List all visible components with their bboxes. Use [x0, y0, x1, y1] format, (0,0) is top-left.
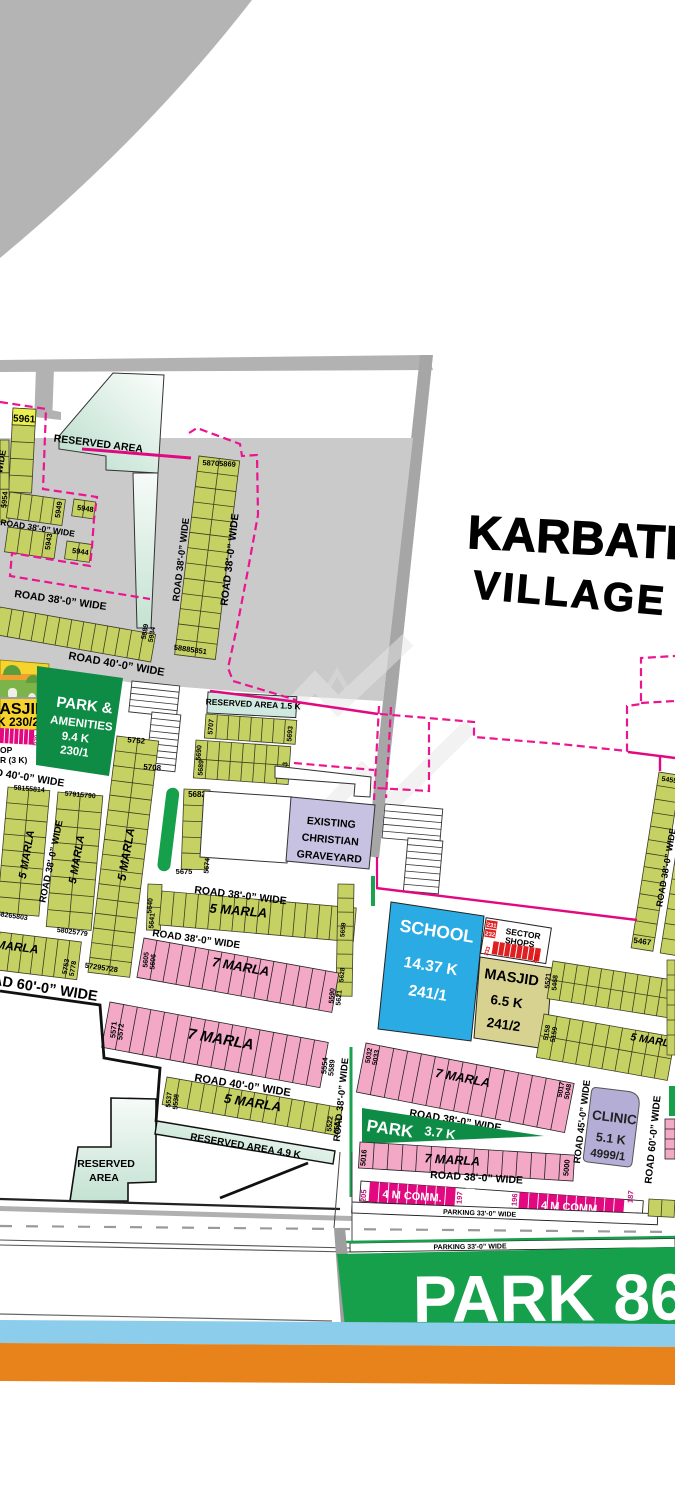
- svg-text:5589: 5589: [326, 1059, 336, 1076]
- svg-text:PARKING 33'-0” WIDE: PARKING 33'-0” WIDE: [433, 1243, 507, 1251]
- svg-text:K 230/2: K 230/2: [0, 715, 39, 729]
- svg-text:5961: 5961: [13, 413, 36, 425]
- svg-text:5641: 5641: [148, 913, 156, 929]
- svg-text:5606: 5606: [149, 954, 157, 970]
- svg-text:5954: 5954: [0, 490, 10, 508]
- svg-text:R (3 K): R (3 K): [0, 755, 28, 765]
- svg-text:AREA: AREA: [89, 1172, 119, 1184]
- svg-text:196: 196: [509, 1193, 519, 1206]
- svg-text:5538: 5538: [172, 1094, 180, 1110]
- svg-text:5628: 5628: [338, 967, 346, 982]
- svg-text:5752: 5752: [127, 735, 146, 746]
- svg-text:5640: 5640: [146, 898, 154, 914]
- svg-text:OP: OP: [0, 745, 13, 755]
- svg-text:RESERVED: RESERVED: [77, 1158, 135, 1170]
- svg-text:5659: 5659: [339, 922, 347, 937]
- svg-text:5000: 5000: [561, 1159, 571, 1176]
- svg-text:5689: 5689: [197, 760, 205, 776]
- svg-text:5708: 5708: [143, 762, 162, 773]
- svg-text:5016: 5016: [358, 1149, 368, 1166]
- svg-text:5675: 5675: [176, 867, 193, 876]
- svg-text:5621: 5621: [335, 990, 343, 1006]
- svg-text:187: 187: [625, 1190, 635, 1203]
- svg-text:5690: 5690: [195, 745, 203, 761]
- svg-text:5572: 5572: [115, 1023, 125, 1040]
- svg-text:58705869: 58705869: [202, 458, 236, 469]
- svg-text:5707: 5707: [207, 719, 215, 735]
- svg-text:197: 197: [454, 1191, 464, 1204]
- svg-text:205: 205: [358, 1189, 368, 1202]
- svg-text:5693: 5693: [286, 726, 294, 742]
- svg-text:5674: 5674: [203, 858, 211, 874]
- svg-text:5468: 5468: [551, 975, 559, 991]
